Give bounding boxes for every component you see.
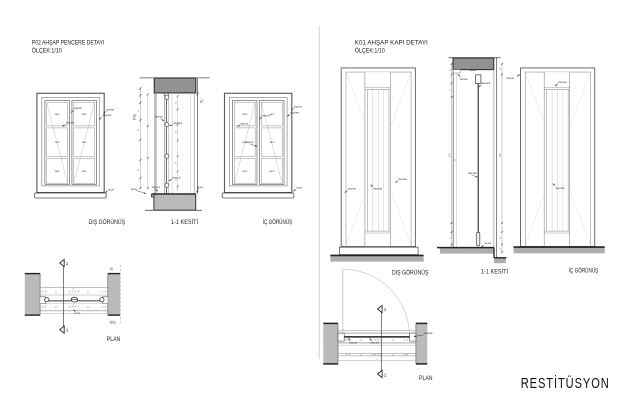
- svg-text:ÖLÇEK:1/10: ÖLÇEK:1/10: [355, 48, 385, 55]
- svg-text:1-1 KESİTİ: 1-1 KESİTİ: [481, 267, 508, 276]
- svg-text:ahşap kanat: ahşap kanat: [482, 82, 491, 85]
- svg-text:cam: cam: [269, 170, 274, 173]
- svg-text:ahşap çıta: ahşap çıta: [66, 121, 74, 124]
- svg-text:taş söve: taş söve: [131, 188, 138, 191]
- svg-text:ahşap bini: ahşap bini: [262, 115, 270, 117]
- svg-text:ahşap kanat: ahşap kanat: [103, 114, 112, 117]
- svg-text:ÖLÇEK:1/10: ÖLÇEK:1/10: [32, 48, 62, 55]
- svg-text:cam: cam: [269, 113, 274, 116]
- svg-text:ahşap kasa: ahşap kasa: [106, 109, 114, 111]
- svg-text:taş söve: taş söve: [297, 187, 304, 190]
- svg-text:ahşap kasa: ahşap kasa: [349, 343, 357, 345]
- svg-text:ahşap bini: ahşap bini: [74, 108, 82, 110]
- svg-text:DIŞ GÖRÜNÜŞ: DIŞ GÖRÜNÜŞ: [89, 218, 126, 226]
- svg-text:DIŞ: DIŞ: [110, 320, 117, 324]
- svg-text:ahşap kasa: ahşap kasa: [155, 117, 163, 119]
- svg-text:cam: cam: [82, 170, 87, 173]
- svg-text:RESTİTÜSYON: RESTİTÜSYON: [521, 374, 610, 392]
- svg-text:PLAN: PLAN: [107, 336, 121, 343]
- svg-text:taş eşik: taş eşik: [485, 242, 492, 245]
- svg-text:ahşap kasa: ahşap kasa: [294, 106, 302, 108]
- svg-text:ahşap kanat: ahşap kanat: [424, 332, 433, 335]
- svg-text:ahşap tabla: ahşap tabla: [468, 172, 477, 175]
- svg-text:cam: cam: [82, 113, 87, 116]
- svg-text:ahşap tabla: ahşap tabla: [374, 188, 383, 191]
- svg-text:ahşap çıta: ahşap çıta: [173, 176, 181, 179]
- svg-text:ahşap tabla: ahşap tabla: [556, 187, 565, 190]
- svg-text:ahşap kasa: ahşap kasa: [152, 187, 160, 189]
- svg-text:ahşap tabla: ahşap tabla: [370, 342, 379, 345]
- svg-text:İÇ: İÇ: [110, 266, 114, 271]
- svg-text:DIŞ: DIŞ: [132, 113, 136, 119]
- svg-text:ahşap kasa: ahşap kasa: [460, 79, 468, 81]
- svg-text:1-1 KESİTİ: 1-1 KESİTİ: [171, 217, 198, 226]
- svg-text:1: 1: [66, 328, 69, 333]
- svg-text:DIŞ GÖRÜNÜŞ: DIŞ GÖRÜNÜŞ: [392, 268, 429, 276]
- svg-text:ahşap kasa: ahşap kasa: [506, 78, 514, 80]
- svg-text:taş söve: taş söve: [108, 188, 115, 191]
- svg-text:İÇ: İÇ: [199, 99, 204, 103]
- svg-text:cam: cam: [82, 141, 87, 144]
- svg-text:taş söve: taş söve: [197, 186, 204, 189]
- svg-text:PLAN: PLAN: [419, 375, 433, 382]
- svg-text:K01 AHŞAP KAPI DETAYI: K01 AHŞAP KAPI DETAYI: [355, 40, 428, 47]
- svg-text:1: 1: [384, 307, 387, 312]
- svg-text:cam: cam: [269, 141, 274, 144]
- svg-text:ahşap çıta: ahşap çıta: [240, 122, 248, 125]
- svg-text:ahşap kanat: ahşap kanat: [398, 178, 407, 181]
- svg-text:İÇ GÖRÜNÜŞ: İÇ GÖRÜNÜŞ: [569, 265, 599, 274]
- svg-text:1: 1: [66, 261, 69, 266]
- svg-text:cam: cam: [55, 141, 60, 144]
- svg-text:ahşap kasa: ahşap kasa: [348, 189, 356, 191]
- svg-text:ahşap kanat: ahşap kanat: [173, 122, 182, 125]
- svg-text:1: 1: [384, 372, 387, 377]
- svg-text:taş söve: taş söve: [74, 312, 81, 315]
- svg-text:P02 AHŞAP PENCERE DETAYI: P02 AHŞAP PENCERE DETAYI: [32, 40, 105, 47]
- svg-text:ahşap kanat: ahşap kanat: [558, 81, 567, 84]
- svg-text:cam: cam: [55, 113, 60, 116]
- svg-text:ispanyolet: ispanyolet: [246, 141, 254, 144]
- svg-text:cam: cam: [242, 113, 247, 116]
- svg-text:ahşap kanat: ahşap kanat: [290, 112, 299, 115]
- svg-text:İÇ GÖRÜNÜŞ: İÇ GÖRÜNÜŞ: [263, 217, 293, 226]
- svg-text:cam: cam: [242, 170, 247, 173]
- svg-text:cam: cam: [55, 170, 60, 173]
